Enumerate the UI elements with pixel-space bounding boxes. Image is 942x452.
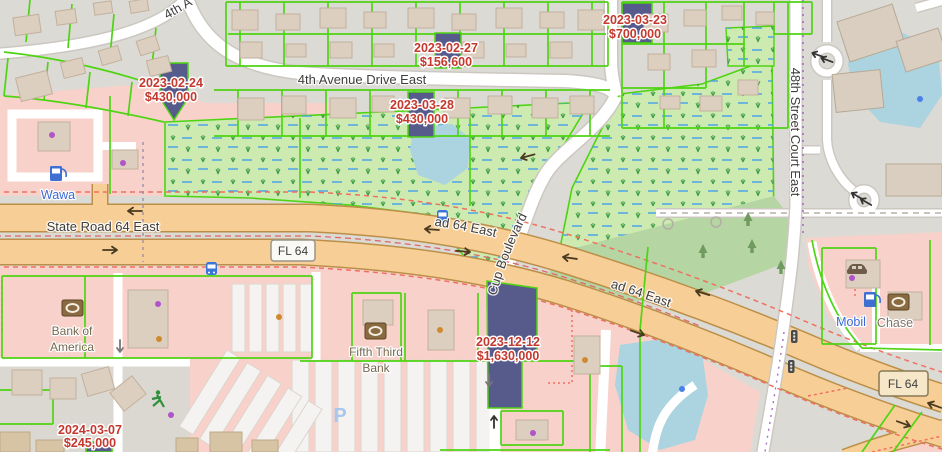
building [240, 42, 262, 58]
building [363, 300, 393, 325]
parking-row [453, 360, 470, 452]
place-label-wawa: Wawa [41, 188, 75, 202]
building [320, 8, 346, 28]
poi-dot-purple [155, 301, 161, 307]
building [452, 14, 476, 30]
sale-price: $1,630,000 [477, 349, 540, 363]
parking-row [283, 284, 296, 352]
poi-dot-orange [276, 314, 282, 320]
parking-row [430, 360, 447, 452]
building [374, 44, 394, 57]
poi-dot-orange [582, 357, 588, 363]
poi-dot-blue [679, 386, 685, 392]
sale-price: $245,000 [64, 436, 116, 450]
building [55, 9, 77, 26]
traffic-signal-icon [788, 360, 795, 373]
building [12, 370, 42, 395]
place-label-mobil: Mobil [836, 315, 866, 329]
large-building [832, 70, 884, 113]
poi-dot-purple [120, 160, 126, 166]
parking-row [232, 284, 245, 352]
building [574, 336, 600, 374]
street-label-48th: 48th Street Court East [788, 68, 803, 197]
building [540, 12, 564, 28]
building [330, 98, 356, 118]
building [210, 432, 242, 452]
building [648, 54, 670, 70]
traffic-signal-icon [791, 330, 798, 343]
building [684, 10, 706, 26]
poi-dot-orange [437, 327, 443, 333]
bank-icon [365, 323, 386, 339]
fl64-shield: FL 64 [271, 240, 315, 261]
place-label-bofa-line2: America [50, 340, 94, 354]
sale-price: $430,000 [145, 90, 197, 104]
building [408, 8, 434, 28]
poi-dot-orange [156, 336, 162, 342]
building [660, 96, 680, 109]
building [112, 150, 138, 169]
poi-dot-purple [849, 275, 855, 281]
parking-label: P [333, 405, 346, 427]
map-canvas[interactable]: 4th A 4th Avenue Drive East State Road 6… [0, 0, 942, 452]
sale-listing[interactable]: 2023-02-24 $430,000 [139, 76, 203, 104]
building [550, 42, 572, 58]
building [488, 96, 512, 114]
sale-price: $700,000 [609, 27, 661, 41]
building [0, 432, 30, 452]
street-label-4th-avenue: 4th Avenue Drive East [298, 72, 427, 87]
sale-listing[interactable]: 2023-02-27 $156,600 [414, 41, 478, 69]
building [36, 440, 64, 452]
sale-listing[interactable]: 2023-12-12 $1,630,000 [476, 335, 540, 363]
bank-icon [888, 294, 909, 310]
poi-dot-purple [168, 412, 174, 418]
building [93, 1, 112, 15]
sale-listing[interactable]: 2023-03-23 $700,000 [603, 13, 667, 41]
parking-row [249, 284, 262, 352]
building [700, 96, 722, 111]
sale-date: 2023-03-28 [390, 98, 454, 112]
building [364, 12, 386, 28]
building [570, 96, 594, 114]
place-label-chase: Chase [877, 316, 913, 330]
poi-dot-purple [530, 430, 536, 436]
fl64-shield-text: FL 64 [278, 244, 309, 258]
building [176, 438, 198, 452]
map-svg: 4th A 4th Avenue Drive East State Road 6… [0, 0, 942, 452]
poi-dot-blue [917, 96, 923, 102]
building [722, 6, 742, 20]
sale-date: 2023-12-12 [476, 335, 540, 349]
fl64-shield: FL 64 [879, 371, 928, 396]
poi-dot-purple [49, 132, 55, 138]
building [506, 44, 526, 57]
building [330, 42, 352, 58]
place-label-fifththird-line2: Bank [362, 361, 390, 375]
building [496, 8, 522, 28]
building [282, 96, 306, 114]
sale-listing[interactable]: 2023-03-28 $430,000 [390, 98, 454, 126]
sale-date: 2023-02-27 [414, 41, 478, 55]
large-building [886, 164, 942, 196]
sale-price: $156,600 [420, 55, 472, 69]
place-label-bofa-line1: Bank of [52, 324, 93, 338]
bus-stop-icon [206, 262, 217, 275]
building [128, 290, 168, 348]
sale-date: 2024-03-07 [58, 423, 122, 437]
building [532, 98, 558, 118]
fl64-shield-text: FL 64 [888, 377, 919, 391]
building [578, 10, 604, 30]
sale-date: 2023-02-24 [139, 76, 203, 90]
building [692, 50, 716, 67]
building [516, 420, 548, 440]
parking-row [407, 360, 424, 452]
sale-listing[interactable]: 2024-03-07 $245,000 [58, 423, 122, 450]
building [232, 10, 258, 30]
building [50, 378, 76, 399]
parking-row [300, 284, 313, 352]
building [13, 14, 41, 35]
street-label-sr64-west: State Road 64 East [47, 219, 160, 234]
building [252, 440, 278, 452]
building [738, 80, 758, 95]
place-label-fifththird-line1: Fifth Third [349, 345, 403, 359]
bank-icon [62, 300, 83, 316]
sale-date: 2023-03-23 [603, 13, 667, 27]
building [756, 12, 774, 25]
building [276, 14, 300, 30]
building [238, 98, 264, 120]
sale-price: $430,000 [396, 112, 448, 126]
building [286, 44, 306, 57]
